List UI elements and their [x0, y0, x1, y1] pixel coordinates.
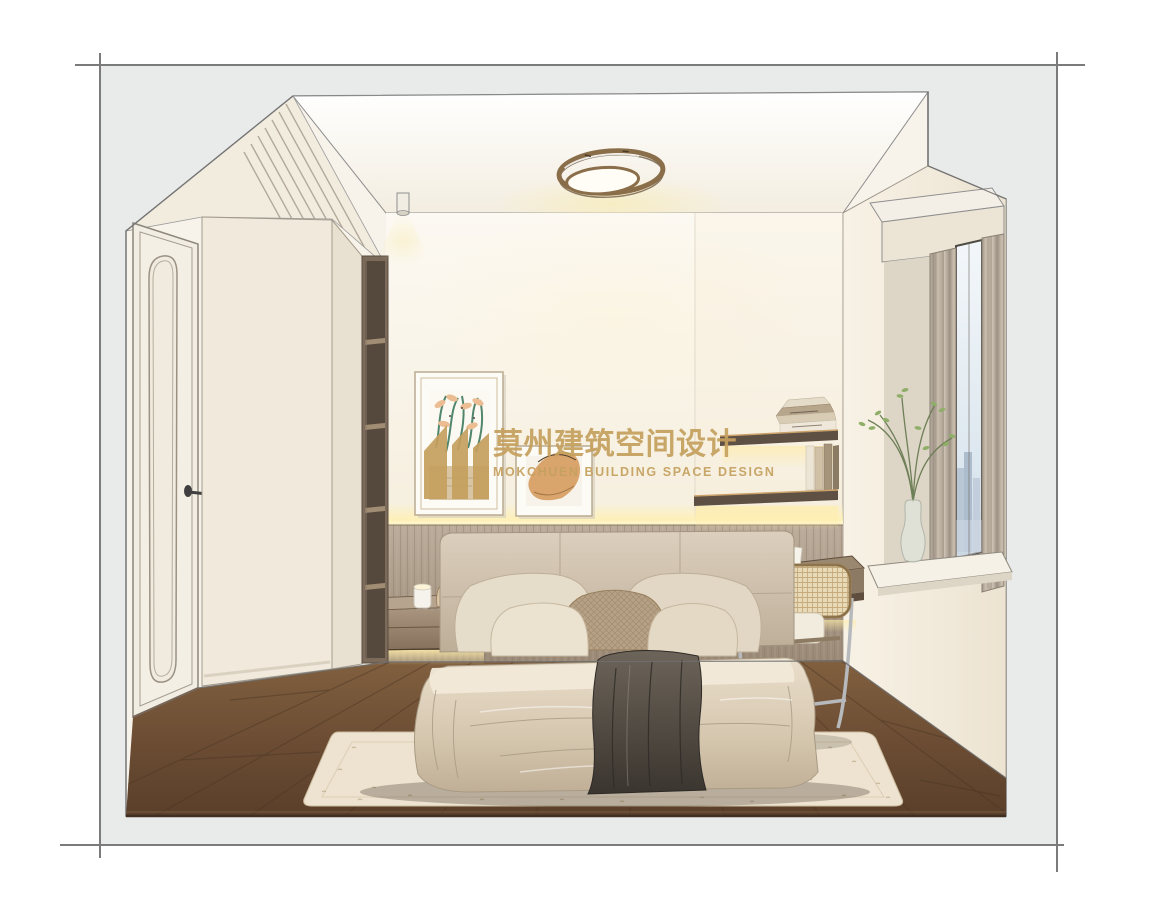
open-shelving — [362, 256, 388, 663]
rendering-canvas: 莫州建筑空间设计 MOKCHUEN BUILDING SPACE DESIGN — [0, 0, 1150, 897]
books-standing — [806, 444, 839, 490]
watermark-title-cn: 莫州建筑空间设计 — [493, 427, 737, 461]
candle-cup — [414, 584, 431, 608]
window-glass — [956, 240, 982, 558]
scene-svg: 莫州建筑空间设计 MOKCHUEN BUILDING SPACE DESIGN — [0, 0, 1150, 897]
interior-door — [133, 223, 207, 717]
throw-blanket — [588, 650, 706, 794]
watermark-subtitle-en: MOKCHUEN BUILDING SPACE DESIGN — [493, 465, 776, 479]
